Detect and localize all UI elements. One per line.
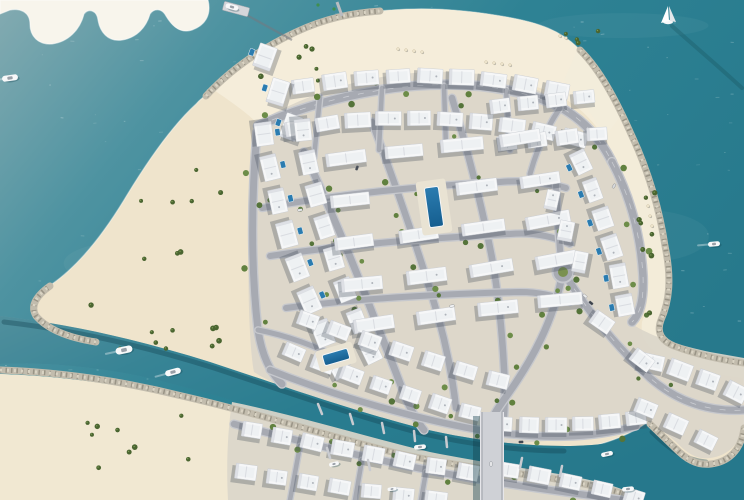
aerial-site-render <box>0 0 744 500</box>
wave-glint <box>124 121 126 122</box>
beach-umbrella <box>509 64 512 67</box>
tree <box>263 320 268 325</box>
buoy <box>332 7 335 10</box>
tree <box>452 134 456 138</box>
tree <box>555 288 560 293</box>
wave-glint <box>738 320 741 321</box>
palm-tree <box>194 168 198 172</box>
villa <box>541 92 567 113</box>
villa <box>318 72 349 96</box>
palm-tree <box>216 338 222 344</box>
wave-glint <box>95 114 96 115</box>
tree <box>437 293 441 297</box>
car <box>298 208 303 211</box>
beach-umbrella <box>493 62 496 65</box>
tree <box>636 376 640 380</box>
palm-tree <box>153 340 158 345</box>
tree <box>309 241 314 246</box>
palm-top <box>176 252 177 253</box>
villa <box>413 68 443 89</box>
palm-tree <box>564 32 568 36</box>
villa <box>341 112 372 133</box>
villa <box>515 417 539 438</box>
boat-dock <box>414 431 415 441</box>
beach-umbrella <box>501 63 504 66</box>
wave-glint <box>728 170 730 171</box>
palm-top <box>597 30 598 31</box>
palm-tree <box>96 465 101 470</box>
palm-tree <box>170 200 175 205</box>
palm-top <box>638 218 639 219</box>
wave-glint <box>695 78 699 79</box>
wave-glint <box>431 7 433 8</box>
palm-tree <box>115 428 120 433</box>
palm-top <box>190 200 191 201</box>
villa-roof-edge <box>449 69 453 85</box>
palm-tree <box>170 328 175 333</box>
private-pool <box>603 274 609 282</box>
tree <box>630 282 636 288</box>
tree <box>314 94 320 100</box>
palm-top <box>648 312 649 313</box>
beach-umbrella <box>649 215 652 218</box>
villa <box>542 417 567 437</box>
wave-glint <box>690 312 693 313</box>
villa <box>404 111 431 131</box>
tree <box>413 422 419 428</box>
tree <box>358 407 363 412</box>
tree <box>432 286 438 292</box>
canal-bridge <box>480 412 504 500</box>
wave-glint <box>703 306 705 307</box>
car <box>490 462 492 467</box>
palm-top <box>140 200 141 201</box>
beach-umbrella <box>421 51 424 54</box>
palm-tree <box>309 46 314 51</box>
villa <box>267 426 293 450</box>
palm-tree <box>139 199 143 203</box>
wave-glint <box>42 54 43 55</box>
tree <box>592 145 597 150</box>
beach-umbrella <box>565 37 568 40</box>
palm-top <box>576 38 577 39</box>
car <box>519 441 524 444</box>
palm-top <box>218 339 219 340</box>
tree <box>495 398 500 403</box>
palm-top <box>128 451 129 452</box>
palm-top <box>171 201 172 202</box>
wave-glint <box>729 122 732 123</box>
tree <box>509 400 515 406</box>
tree <box>544 344 549 349</box>
tree <box>442 384 448 390</box>
palm-top <box>133 446 134 447</box>
boat-dock <box>446 437 447 447</box>
palm-tree <box>314 67 318 71</box>
beach-umbrella <box>405 49 408 52</box>
wave-glint <box>5 365 6 366</box>
palm-tree <box>190 199 194 203</box>
palm-top <box>90 304 91 305</box>
wave-glint <box>647 47 649 48</box>
palm-top <box>179 251 180 252</box>
wave-glint <box>707 233 709 234</box>
palm-tree <box>649 253 655 259</box>
tree <box>449 414 454 419</box>
tree <box>573 277 579 283</box>
palm-tree <box>164 346 168 350</box>
palm-tree <box>638 221 643 226</box>
villa <box>433 111 463 131</box>
palm-tree <box>650 232 655 237</box>
palm-top <box>211 345 212 346</box>
palm-tree <box>175 251 180 256</box>
palm-tree <box>186 457 191 462</box>
villa <box>551 128 580 151</box>
palm-tree <box>258 73 264 79</box>
wave-glint <box>681 270 684 271</box>
tree <box>394 213 399 218</box>
palm-tree <box>95 424 100 429</box>
palm-tree <box>596 29 600 33</box>
wave-glint <box>233 61 236 62</box>
palm-top <box>317 79 318 80</box>
villa-roof-ridge <box>597 129 598 138</box>
wave-glint <box>731 42 734 43</box>
tree <box>326 185 332 191</box>
palm-tree <box>150 330 154 334</box>
villa <box>583 127 608 146</box>
villa <box>476 71 507 93</box>
wave-glint <box>39 280 42 281</box>
tree <box>514 364 519 369</box>
wave-glint <box>140 60 144 61</box>
private-pool <box>609 304 615 312</box>
palm-top <box>640 222 641 223</box>
palm-top <box>315 68 316 69</box>
villa-roof-edge <box>407 111 410 126</box>
rooftop-unit <box>561 424 563 426</box>
villa <box>382 69 411 89</box>
wave-glint <box>583 40 586 41</box>
wave-glint <box>728 253 732 254</box>
tree <box>669 383 673 387</box>
palm-top <box>180 414 181 415</box>
palm-top <box>565 33 566 34</box>
palm-top <box>641 248 642 249</box>
palm-tree <box>296 55 301 60</box>
villa <box>262 468 288 490</box>
palm-top <box>187 458 188 459</box>
palm-top <box>91 433 92 434</box>
palm-top <box>298 56 299 57</box>
wave-glint <box>147 378 149 379</box>
palm-top <box>577 42 578 43</box>
palm-top <box>212 327 213 328</box>
villa-roof-ridge <box>430 71 431 82</box>
palm-top <box>86 422 87 423</box>
wave-glint <box>68 369 72 370</box>
tree <box>332 383 337 388</box>
wave-glint <box>724 152 726 153</box>
villa <box>569 417 594 436</box>
villa <box>293 472 319 495</box>
palm-tree <box>218 190 223 195</box>
villa-roof-edge <box>375 111 378 125</box>
beach-umbrella <box>647 205 650 208</box>
wave-glint <box>629 90 630 91</box>
villa-roof-ridge <box>357 115 358 126</box>
tree <box>534 440 539 445</box>
tree <box>257 202 263 208</box>
palm-top <box>154 341 155 342</box>
villa <box>569 89 595 109</box>
palm-top <box>650 254 651 255</box>
tree <box>243 170 249 176</box>
palm-top <box>97 466 98 467</box>
tree <box>566 286 571 291</box>
villa <box>230 463 257 486</box>
tree <box>478 243 484 249</box>
wave-glint <box>667 114 668 115</box>
villa <box>445 69 474 90</box>
private-pool <box>275 128 281 136</box>
tree <box>382 179 388 185</box>
villa-roof-edge <box>519 417 523 433</box>
villa <box>514 95 540 116</box>
tree <box>359 259 364 264</box>
tree <box>410 264 416 270</box>
wave-glint <box>135 39 138 40</box>
rooftop-unit <box>394 117 396 119</box>
palm-top <box>151 331 152 332</box>
palm-top <box>116 429 117 430</box>
villa <box>486 98 512 120</box>
tree <box>477 175 481 179</box>
palm-tree <box>90 433 94 437</box>
wave-glint <box>666 57 668 58</box>
palm-tree <box>132 444 138 450</box>
palm-top <box>171 329 172 330</box>
palm-top <box>305 45 306 46</box>
palm-tree <box>575 37 579 41</box>
wave-glint <box>581 21 584 22</box>
villa <box>350 70 379 91</box>
palm-top <box>96 425 97 426</box>
beach-umbrella <box>413 50 416 53</box>
island-masterplan-svg <box>0 0 744 500</box>
palm-tree <box>142 257 146 261</box>
beach-umbrella <box>559 35 562 38</box>
palm-tree <box>644 196 648 200</box>
tree <box>262 112 268 118</box>
tree <box>348 101 355 108</box>
palm-top <box>219 191 220 192</box>
buoy <box>316 3 319 6</box>
tree <box>620 165 626 171</box>
beach-umbrella <box>397 48 400 51</box>
wave-glint <box>49 85 51 86</box>
wave-glint <box>138 169 141 170</box>
wave-glint <box>105 141 106 142</box>
beach-umbrella <box>485 61 488 64</box>
villa-roof-ridge <box>398 71 399 81</box>
palm-top <box>645 196 646 197</box>
palm-tree <box>304 44 309 49</box>
wave-glint <box>716 97 720 98</box>
tree <box>619 436 625 442</box>
tree <box>628 342 633 347</box>
beach-umbrella <box>651 225 654 228</box>
tree <box>389 398 395 404</box>
palm-tree <box>647 310 652 315</box>
villa-roof-ridge <box>450 114 451 124</box>
villa-roof-edge <box>572 417 575 431</box>
palm-tree <box>640 247 645 252</box>
wave-glint <box>153 25 155 26</box>
palm-top <box>165 347 166 348</box>
palm-top <box>311 48 312 49</box>
tree <box>241 265 247 271</box>
palm-tree <box>127 450 132 455</box>
villa <box>289 115 312 142</box>
boat-cabin <box>712 243 716 246</box>
palm-top <box>143 257 144 258</box>
villa <box>372 111 402 130</box>
palm-top <box>653 191 654 192</box>
palm-tree <box>210 326 216 332</box>
palm-tree <box>88 302 93 307</box>
tree <box>445 479 450 484</box>
tree <box>458 103 463 108</box>
wave-glint <box>731 94 734 95</box>
palm-top <box>195 169 196 170</box>
palm-tree <box>85 421 89 425</box>
villa-roof-edge <box>545 417 548 432</box>
villa <box>237 420 263 443</box>
villa <box>595 413 622 435</box>
palm-top <box>651 233 652 234</box>
palm-top <box>260 75 261 76</box>
tree <box>403 91 409 97</box>
wave-glint <box>674 22 676 23</box>
palm-tree <box>210 344 215 349</box>
tree <box>507 333 513 339</box>
palm-tree <box>179 414 183 418</box>
villa <box>421 457 447 480</box>
bridge-shadow <box>473 416 480 500</box>
palm-tree <box>652 190 657 195</box>
tree <box>466 91 472 97</box>
tree <box>624 222 630 228</box>
boat-wake <box>698 245 708 246</box>
wave-glint <box>573 27 574 28</box>
